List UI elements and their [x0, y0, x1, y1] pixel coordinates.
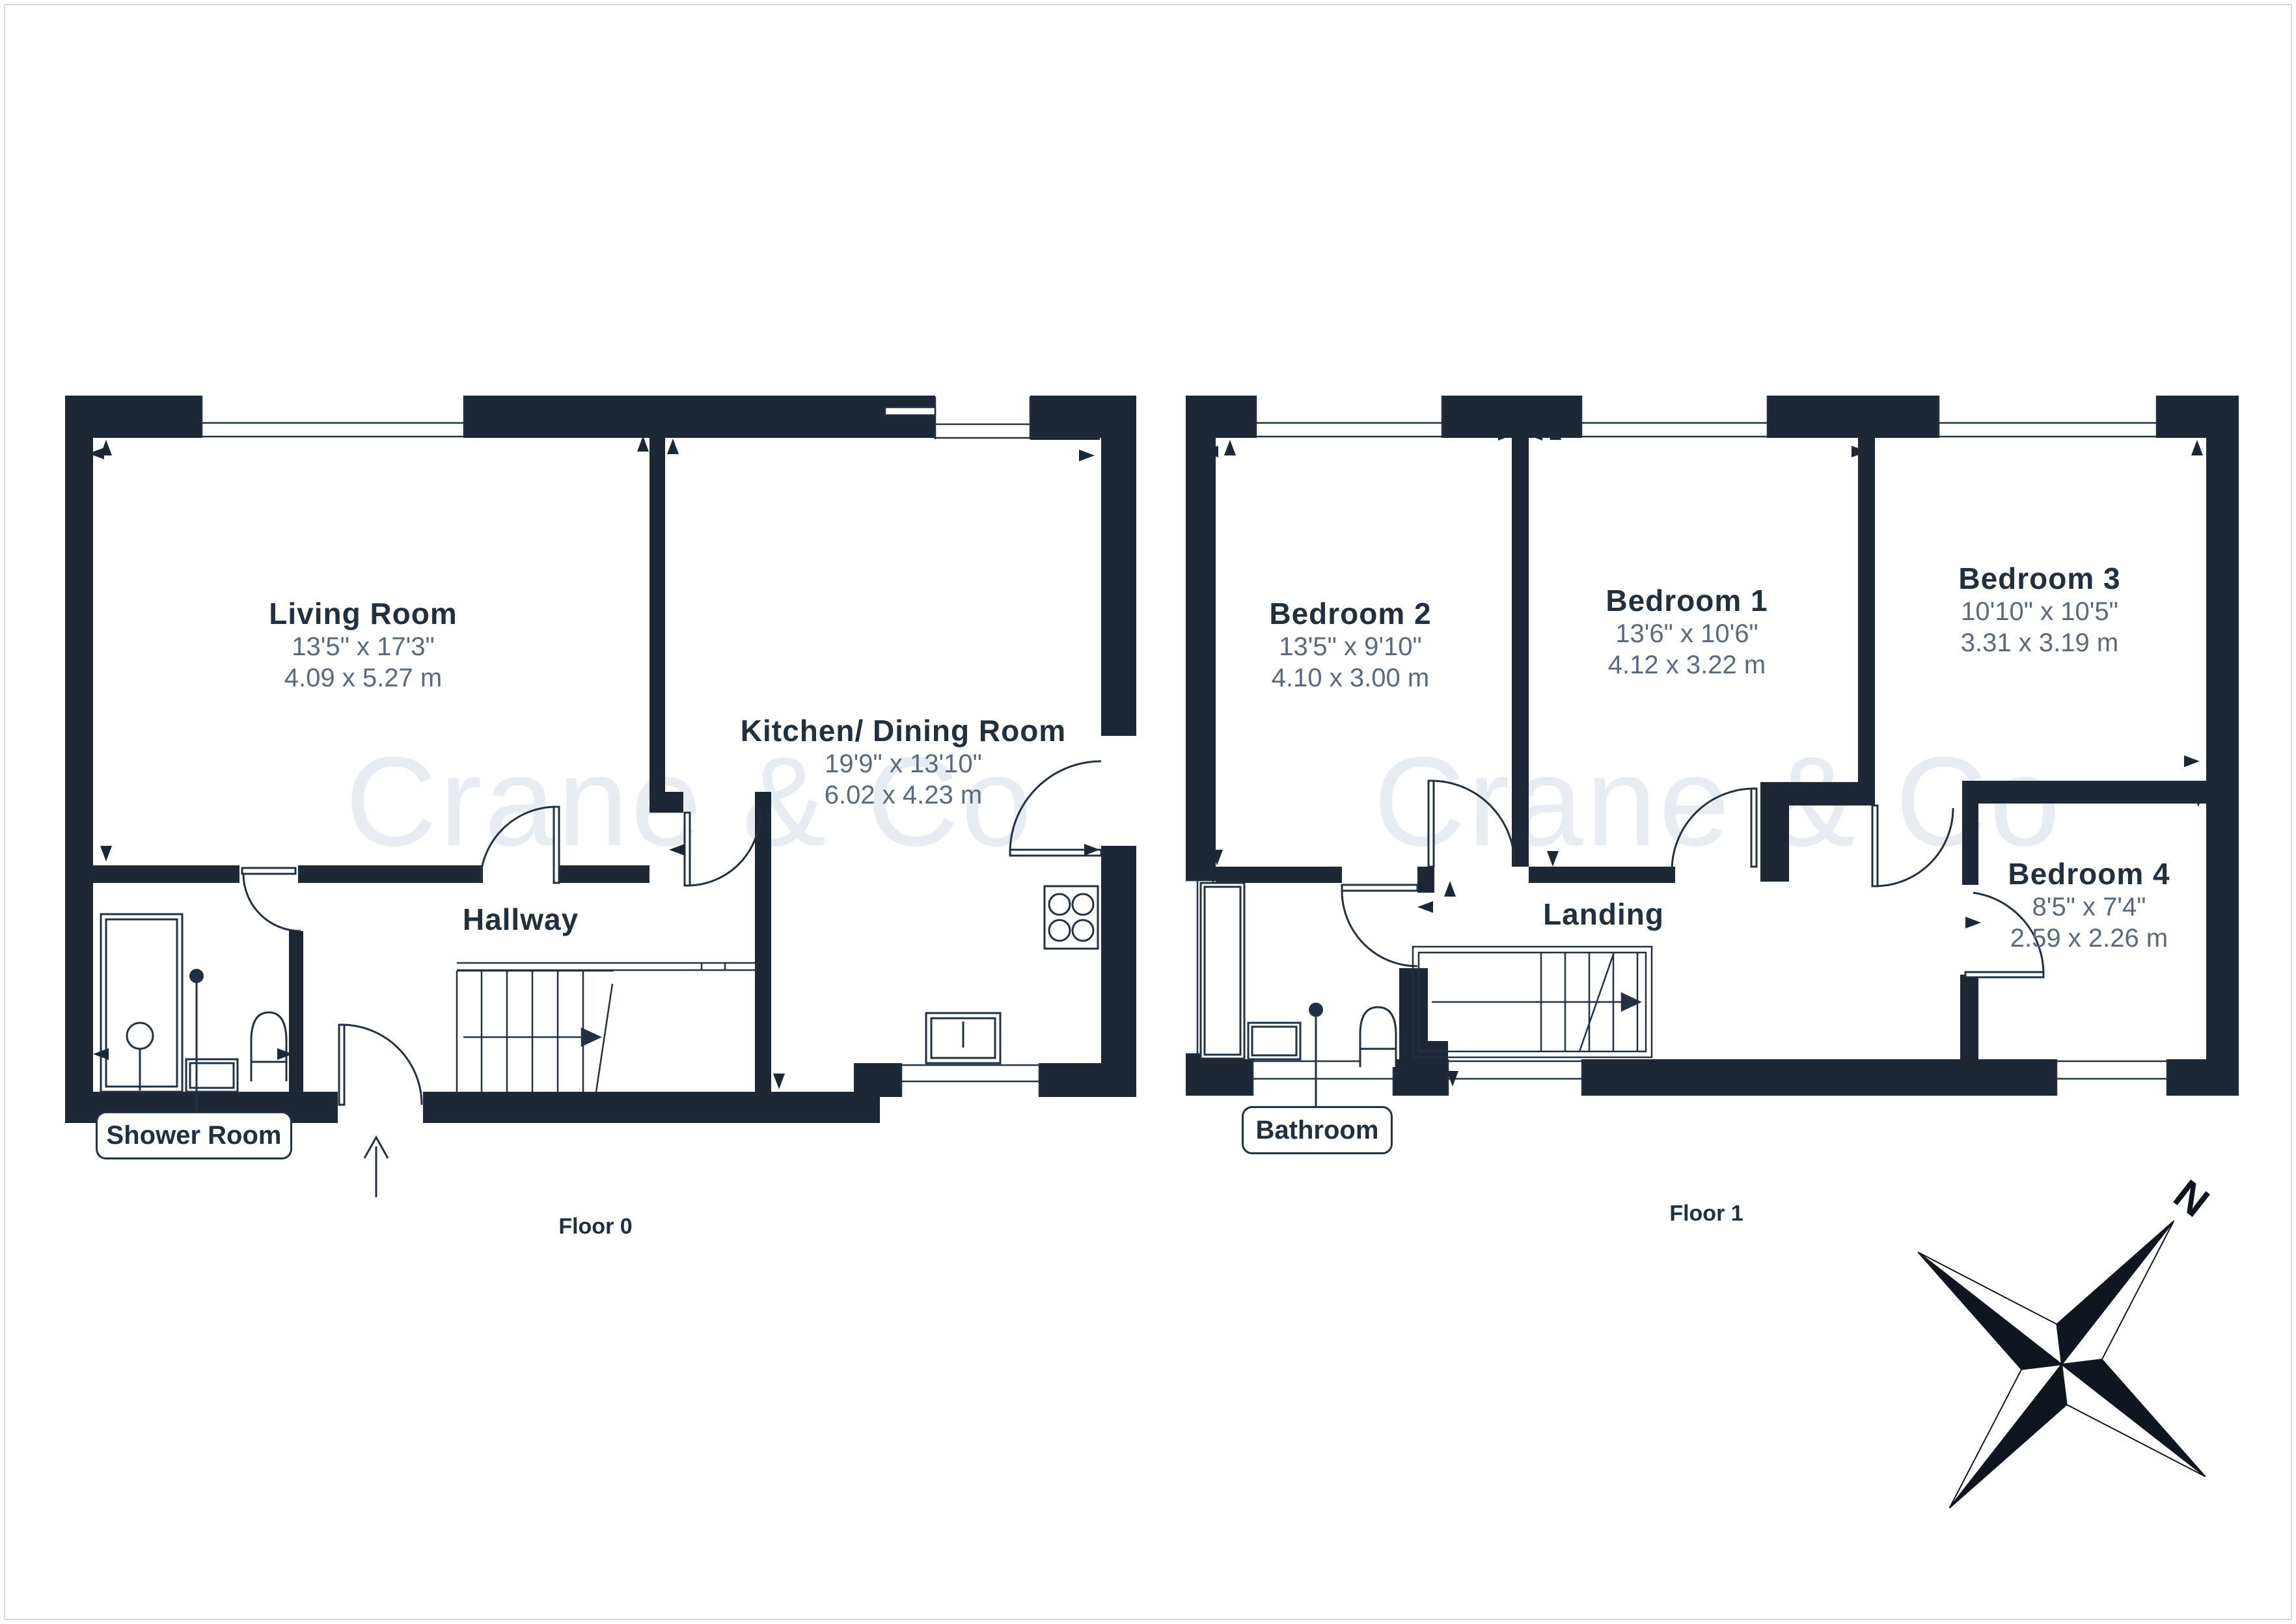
kitchen-sink — [926, 1013, 1000, 1063]
compass-rose-icon: N — [1806, 1068, 2296, 1620]
door-bedroom-1 — [1672, 789, 1756, 871]
callout-bathroom: Bathroom — [1242, 1106, 1393, 1154]
door-kitchen — [685, 813, 760, 886]
room-label-bedroom-3: Bedroom 3 10'10" x 10'5" 3.31 x 3.19 m — [1958, 561, 2120, 658]
room-metric-dim: 4.09 x 5.27 m — [269, 662, 458, 694]
floor0-stairs — [457, 963, 755, 1092]
floor1-fixtures — [1201, 883, 1396, 1067]
floor0-fixtures — [101, 886, 1098, 1092]
room-imperial-dim: 10'10" x 10'5" — [1958, 596, 2120, 627]
room-name: Bedroom 3 — [1958, 561, 2120, 596]
room-imperial-dim: 13'6" x 10'6" — [1606, 618, 1768, 649]
floor1-dimension-arrows — [1203, 424, 2204, 1087]
window — [2057, 1059, 2167, 1096]
room-metric-dim: 4.12 x 3.22 m — [1606, 649, 1768, 681]
floor0-entrance-arrow — [364, 1137, 388, 1197]
stair-direction-arrow-icon — [582, 1029, 600, 1046]
window — [1581, 396, 1768, 438]
toilet — [1360, 1007, 1396, 1067]
window — [1939, 396, 2157, 438]
door-bedroom-2 — [1428, 781, 1514, 867]
page-border — [5, 5, 2291, 1619]
floor1-walls — [1186, 396, 2239, 1096]
room-imperial-dim: 8'5" x 7'4" — [2008, 891, 2170, 923]
room-name: Bedroom 1 — [1606, 583, 1768, 618]
room-name: Bedroom 4 — [2008, 856, 2170, 891]
window — [901, 1063, 1039, 1097]
room-label-hallway: Hallway — [463, 902, 579, 937]
room-metric-dim: 2.59 x 2.26 m — [2008, 923, 2170, 954]
window — [202, 396, 464, 438]
room-name: Hallway — [463, 902, 579, 937]
room-metric-dim: 6.02 x 4.23 m — [741, 779, 1066, 811]
room-metric-dim: 3.31 x 3.19 m — [1958, 627, 2120, 658]
toilet — [251, 1012, 286, 1081]
door-front-entrance — [339, 1025, 422, 1105]
room-name: Living Room — [269, 596, 458, 631]
room-name: Kitchen/ Dining Room — [741, 713, 1066, 748]
room-label-living-room: Living Room 13'5" x 17'3" 4.09 x 5.27 m — [269, 596, 458, 694]
door-bedroom-3 — [1872, 805, 1953, 886]
floor1-windows — [1186, 396, 2167, 1096]
room-imperial-dim: 13'5" x 17'3" — [269, 631, 458, 662]
room-label-landing: Landing — [1543, 897, 1664, 932]
floorplan-page: Crane & Co Crane & Co — [0, 0, 2296, 1624]
room-label-kitchen-dining: Kitchen/ Dining Room 19'9" x 13'10" 6.02… — [741, 713, 1066, 811]
sink — [186, 1059, 238, 1092]
bathtub — [1201, 883, 1244, 1059]
room-name: Bedroom 2 — [1269, 596, 1431, 631]
hob — [1045, 886, 1098, 949]
floor1-stairs — [1413, 947, 1652, 1057]
door-shower-room — [242, 868, 301, 931]
sink — [1248, 1023, 1300, 1059]
floorplan-drawing: N — [0, 0, 2296, 1624]
room-name: Landing — [1543, 897, 1664, 932]
window — [1448, 1059, 1582, 1096]
floor1-doors — [1342, 781, 2043, 977]
room-label-bedroom-4: Bedroom 4 8'5" x 7'4" 2.59 x 2.26 m — [2008, 856, 2170, 954]
window — [1256, 396, 1442, 438]
room-imperial-dim: 19'9" x 13'10" — [741, 748, 1066, 779]
door-living — [480, 807, 559, 883]
room-imperial-dim: 13'5" x 9'10" — [1269, 631, 1431, 662]
floor1-caption: Floor 1 — [1669, 1201, 1743, 1226]
room-label-bedroom-2: Bedroom 2 13'5" x 9'10" 4.10 x 3.00 m — [1269, 596, 1431, 694]
room-metric-dim: 4.10 x 3.00 m — [1269, 662, 1431, 694]
room-label-bedroom-1: Bedroom 1 13'6" x 10'6" 4.12 x 3.22 m — [1606, 583, 1768, 681]
compass-north-label: N — [2165, 1171, 2218, 1226]
door-bathroom — [1342, 885, 1417, 966]
shower-enclosure — [101, 914, 182, 1092]
callout-shower-room: Shower Room — [96, 1111, 292, 1159]
floor0-caption: Floor 0 — [558, 1214, 632, 1239]
